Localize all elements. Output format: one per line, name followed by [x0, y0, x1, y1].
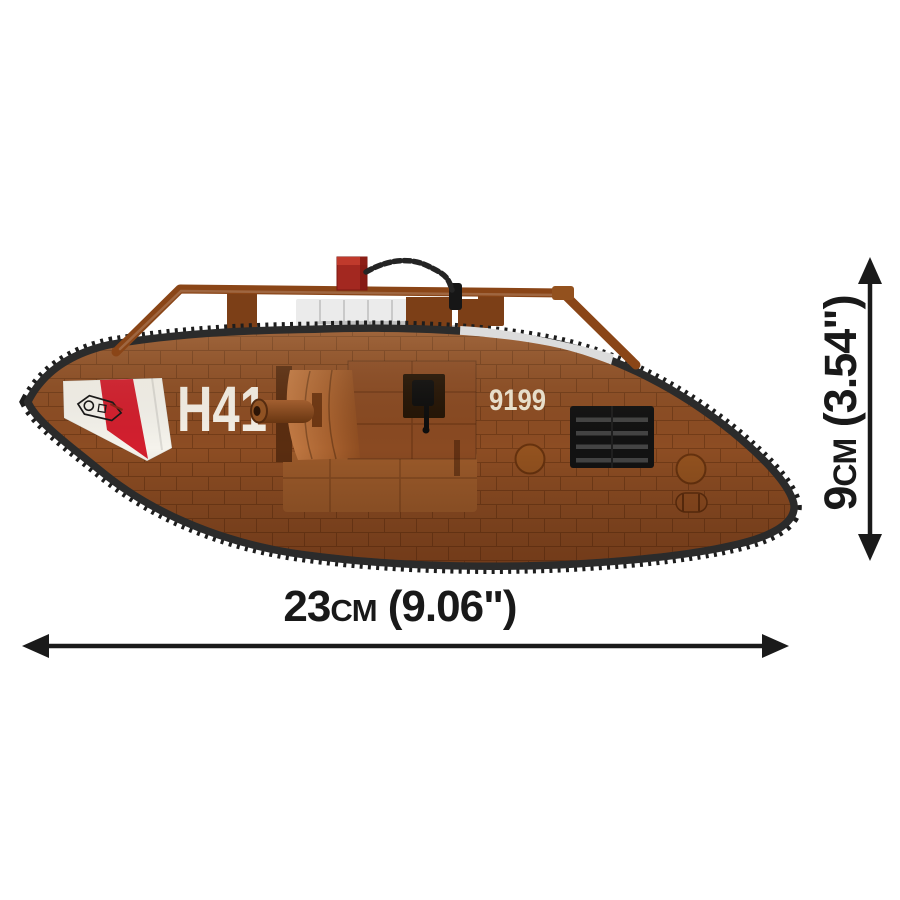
tow-chain	[366, 261, 452, 290]
hull-shading	[20, 320, 810, 580]
product-image: H41	[0, 0, 900, 900]
arrow-right-head	[762, 634, 789, 658]
tank-illustration: H41	[0, 0, 900, 900]
width-dimension-arrow	[22, 634, 789, 658]
width-dimension-label: 23cm (9.06")	[150, 584, 650, 630]
rail-joint	[552, 286, 574, 300]
roof-brick-block	[406, 297, 452, 328]
arrow-left-head	[22, 634, 49, 658]
unditching-beam-block	[337, 257, 367, 290]
height-dimension-label: 9cm (3.54")	[813, 233, 869, 573]
roof-brick-block	[458, 299, 488, 328]
